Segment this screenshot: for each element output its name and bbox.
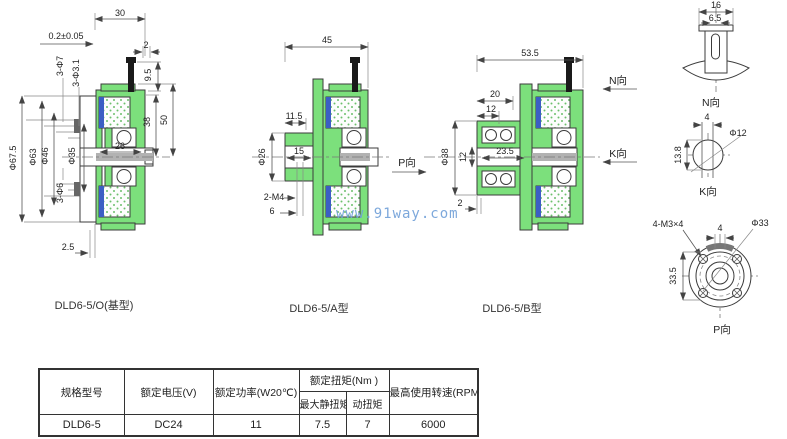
key-tab bbox=[707, 246, 733, 249]
caption-base: DLD6-5/O(基型) bbox=[55, 298, 134, 312]
terminal-cap bbox=[126, 57, 136, 63]
header-speed: 最高使用转速(RPM) bbox=[389, 369, 478, 415]
bearing-ball-bottom bbox=[117, 170, 131, 184]
dim-od: Φ67.5 bbox=[8, 146, 18, 171]
dim-50: 50 bbox=[159, 115, 169, 125]
terminal-pin bbox=[128, 63, 134, 92]
coil-top bbox=[326, 97, 360, 128]
shaft-section bbox=[693, 140, 723, 170]
view-base: 30 0.2±0.05 2 3-Φ7 3-Φ3.1 9.5 38 50 Φ67.… bbox=[8, 8, 176, 312]
view-b-type: 53.5 20 12 Φ38 12 23.5 2 N向 K向 DLD6-5/B型 bbox=[424, 48, 637, 315]
cell-power: 11 bbox=[213, 415, 299, 437]
dim-138: 13.8 bbox=[673, 146, 683, 164]
detail-p-view: 4 4-M3×4 Φ33 33.5 P向 bbox=[653, 218, 769, 336]
body-step-bottom bbox=[101, 223, 135, 230]
bearing-ball-top bbox=[557, 131, 571, 145]
body-step-bottom bbox=[329, 223, 361, 230]
cell-speed: 6000 bbox=[389, 415, 478, 437]
terminal-cap bbox=[350, 57, 360, 63]
technical-drawing: 30 0.2±0.05 2 3-Φ7 3-Φ3.1 9.5 38 50 Φ67.… bbox=[0, 0, 787, 362]
direction-n: N向 bbox=[609, 74, 627, 87]
hub-ball-top-1 bbox=[486, 130, 497, 141]
hub-ball-bottom-1 bbox=[486, 174, 497, 185]
bearing-ball-top bbox=[347, 131, 361, 145]
direction-k: K向 bbox=[609, 147, 627, 160]
dim-16: 16 bbox=[711, 0, 721, 10]
cell-static-torque: 7.5 bbox=[299, 415, 346, 437]
dim-lip: 2 bbox=[143, 40, 148, 50]
detail-n-label: N向 bbox=[702, 96, 720, 109]
dim-screws: 4-M3×4 bbox=[653, 219, 684, 229]
dim-335: 33.5 bbox=[668, 267, 678, 285]
cell-dynamic-torque: 7 bbox=[346, 415, 389, 437]
drawing-sheet: 30 0.2±0.05 2 3-Φ7 3-Φ3.1 9.5 38 50 Φ67.… bbox=[0, 0, 787, 439]
detail-k-view: 4 Φ12 13.8 K向 bbox=[673, 112, 747, 198]
flange-stub-bottom bbox=[74, 182, 80, 196]
header-torque-group: 额定扭矩(Nm ) bbox=[299, 369, 389, 392]
coil-stripe-bottom bbox=[99, 186, 104, 217]
header-power: 额定功率(W20℃) bbox=[213, 369, 299, 415]
terminal-pin bbox=[352, 63, 358, 92]
header-voltage: 额定电压(V) bbox=[124, 369, 213, 415]
dim-holes6: 3-Φ6 bbox=[55, 183, 65, 203]
coil-stripe-bottom bbox=[536, 186, 541, 217]
dim-12: 12 bbox=[486, 104, 496, 114]
hub-ball-bottom-2 bbox=[501, 174, 512, 185]
header-model: 规格型号 bbox=[39, 369, 124, 415]
dim-4: 4 bbox=[704, 112, 709, 122]
key-slot bbox=[712, 34, 720, 59]
dim-hub: 11.5 bbox=[286, 111, 303, 121]
watermark: www.91way.com bbox=[336, 206, 459, 222]
detail-n-view: 16 6.5 N向 bbox=[683, 0, 749, 109]
view-a-type: 45 11.5 Φ26 15 2-M4 6 P向 DLD6-5/A型 bbox=[252, 35, 426, 315]
dim-63: Φ63 bbox=[28, 148, 38, 165]
dim-slot4: 4 bbox=[717, 223, 722, 233]
dim-offset: 2.5 bbox=[62, 242, 75, 252]
dim-phi12: Φ12 bbox=[729, 128, 746, 138]
dim-46: Φ46 bbox=[40, 147, 50, 164]
dim-len: 23.5 bbox=[496, 146, 514, 156]
dim-20: 20 bbox=[490, 89, 500, 99]
collar bbox=[699, 25, 733, 31]
header-dynamic-torque: 动扭矩 bbox=[346, 392, 389, 415]
caption-b-type: DLD6-5/B型 bbox=[482, 301, 541, 315]
dim-hub-od: Φ26 bbox=[257, 148, 267, 165]
cell-model: DLD6-5 bbox=[39, 415, 124, 437]
coil-stripe-top bbox=[326, 97, 331, 128]
dim-width: 45 bbox=[322, 35, 332, 45]
bearing-ball-bottom bbox=[347, 170, 361, 184]
dim-bore: 15 bbox=[294, 146, 304, 156]
header-static-torque: 最大静扭矩 bbox=[299, 392, 346, 415]
dim-depth: 6 bbox=[269, 206, 274, 216]
dim-bore12: 12 bbox=[458, 152, 468, 162]
coil-stripe-top bbox=[536, 97, 541, 128]
dim-65: 6.5 bbox=[709, 13, 722, 23]
dim-width: 53.5 bbox=[521, 48, 539, 58]
dim-hub-od: Φ38 bbox=[440, 148, 450, 165]
direction-p: P向 bbox=[398, 156, 416, 169]
coil-bottom bbox=[536, 186, 570, 217]
dim-35: Φ35 bbox=[67, 147, 77, 164]
cell-voltage: DC24 bbox=[124, 415, 213, 437]
dim-26: 26 bbox=[115, 141, 125, 151]
dim-width: 30 bbox=[115, 8, 125, 18]
coil-stripe-bottom bbox=[326, 186, 331, 217]
dim-holes7: 3-Φ7 bbox=[55, 56, 65, 76]
dim-phi33: Φ33 bbox=[751, 218, 768, 228]
detail-p-label: P向 bbox=[713, 323, 731, 336]
hub-ball-top-2 bbox=[501, 130, 512, 141]
dim-95: 9.5 bbox=[143, 69, 153, 82]
dim-tap: 2-M4 bbox=[264, 192, 285, 202]
terminal-pin bbox=[566, 63, 572, 92]
spec-table: 规格型号 额定电压(V) 额定功率(W20℃) 额定扭矩(Nm ) 最高使用转速… bbox=[38, 368, 479, 437]
dim-38: 38 bbox=[142, 117, 152, 127]
dim-holes31: 3-Φ3.1 bbox=[71, 59, 81, 87]
dim-tolerance: 0.2±0.05 bbox=[49, 31, 84, 41]
detail-k-label: K向 bbox=[699, 185, 717, 198]
coil-stripe-top bbox=[99, 97, 104, 128]
coil-top bbox=[536, 97, 570, 128]
bearing-ball-bottom bbox=[557, 170, 571, 184]
body-step-top bbox=[538, 84, 568, 91]
body-step-bottom bbox=[538, 223, 568, 230]
caption-a-type: DLD6-5/A型 bbox=[289, 301, 348, 315]
